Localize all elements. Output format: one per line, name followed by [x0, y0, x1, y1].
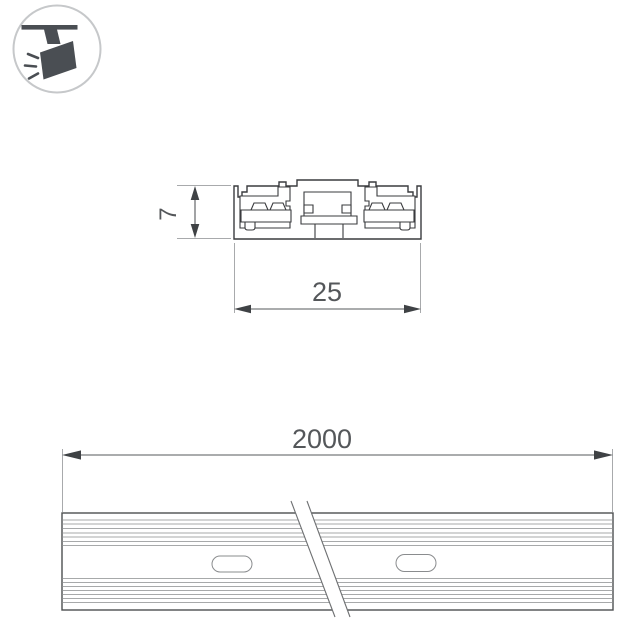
width-dimension-label: 25	[312, 277, 342, 307]
track-spotlight-icon	[14, 6, 101, 93]
mounting-slot-left	[212, 556, 252, 572]
mounting-slot-right	[396, 555, 436, 572]
arrowhead-up	[191, 186, 200, 200]
track-rail-icon	[22, 25, 78, 30]
technical-drawing-page: 7 25 2000	[0, 0, 619, 623]
length-dimension: 2000	[62, 424, 613, 512]
conductor-bar	[364, 210, 414, 222]
conductor-contact	[251, 203, 268, 210]
upper-rib-lines	[62, 520, 613, 546]
arrowhead-down	[191, 224, 200, 238]
arrowhead-right	[594, 450, 613, 459]
conductor-bar	[241, 210, 291, 222]
length-dimension-label: 2000	[292, 424, 352, 454]
arrowhead-right	[404, 305, 421, 314]
width-dimension: 25	[234, 243, 421, 313]
conductor-foot	[400, 222, 410, 230]
channel-hook-left	[304, 205, 313, 213]
arrowhead-left	[234, 305, 251, 314]
cross-section-view: 7 25	[155, 180, 421, 313]
conductor-contact	[387, 203, 404, 210]
light-ray-icon	[25, 66, 36, 67]
conductor-contact	[270, 203, 286, 210]
arrowhead-left	[62, 450, 81, 459]
height-dimension: 7	[155, 186, 231, 239]
height-dimension-label: 7	[155, 207, 182, 220]
conductor-foot	[245, 222, 255, 230]
conductor-contact	[369, 203, 385, 210]
length-view: 2000	[62, 424, 613, 617]
channel-hook-right	[342, 205, 351, 213]
center-tongue	[301, 216, 357, 224]
drawing-canvas: 7 25 2000	[0, 0, 619, 623]
